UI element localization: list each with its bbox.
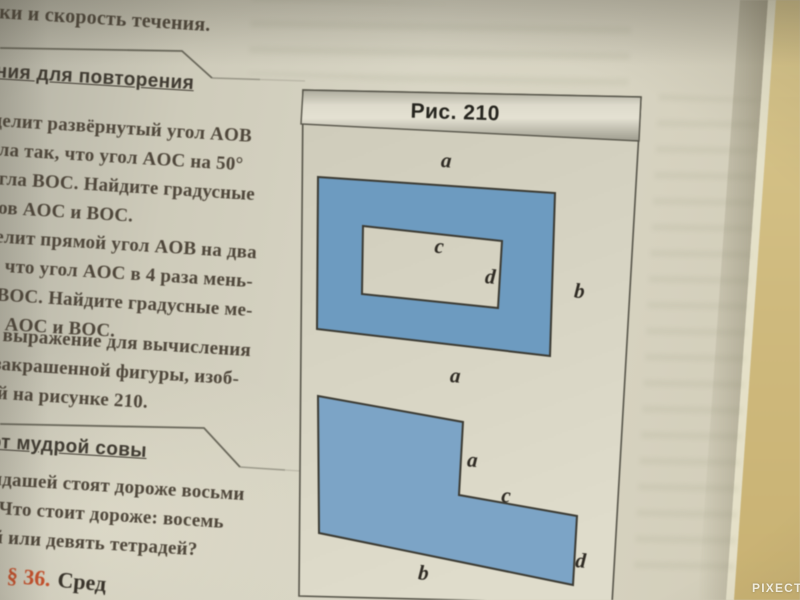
section-number: § 36. <box>6 562 52 591</box>
problem-paragraph: рандашей стоят дороже восьми ей. Что сто… <box>0 463 245 567</box>
shape-label-b-bottom: b <box>417 560 429 585</box>
problem-paragraph: делит развёрнутый угол AOB гла так, что … <box>0 106 259 238</box>
problem-paragraph: те выражение для вычисления и закрашенно… <box>0 320 252 423</box>
shape-label-a-step: a <box>466 447 478 472</box>
camera-watermark: PIXECT <box>752 581 800 595</box>
textbook-photo: Рис. 210 a c d b a a c d b ки и скорость… <box>0 0 800 600</box>
section-title-partial: Сред <box>57 567 108 596</box>
section-tab-repeat: ния для повторения <box>0 61 195 95</box>
figure-caption: Рис. 210 <box>410 100 500 126</box>
text-column: ки и скорость течения. ния для повторени… <box>0 0 307 600</box>
section-tab-owl: а от мудрой совы <box>0 430 148 463</box>
shape-label-a-top: a <box>440 148 452 173</box>
shape-label-a-top-l: a <box>449 363 461 388</box>
next-section-heading: § 36.Сред <box>6 562 108 597</box>
shape-label-b-right: b <box>573 278 585 303</box>
